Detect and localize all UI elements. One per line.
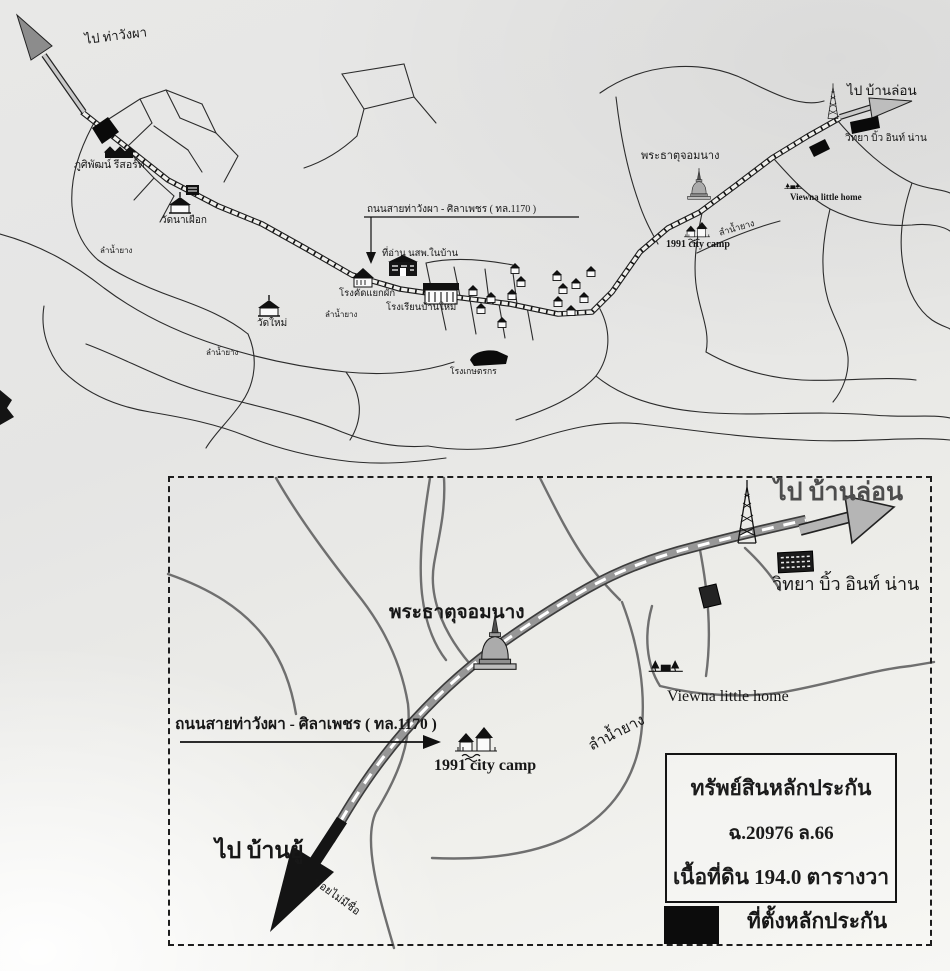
radio-tower-overview-icon (828, 83, 838, 118)
city-camp-overview-label: 1991 city camp (666, 239, 730, 250)
resort-icon (105, 147, 135, 158)
phra-that-detail-label: พระธาตุจอมนาง (389, 603, 525, 624)
wittaya-overview-label: วิทยา บิ้ว อินท์ น่าน (845, 133, 927, 144)
overview-minor-roads (0, 64, 950, 463)
phra-that-overview-label: พระธาตุจอมนาง (641, 150, 719, 162)
viewna-overview-icon (784, 184, 801, 189)
collateral-title: ทรัพย์สินหลักประกัน (667, 772, 895, 805)
farmer-building-icon (470, 350, 508, 366)
phra-that-chom-nang-overview-icon (688, 168, 711, 199)
collateral-deed-no: ฉ.20976 ล.66 (667, 818, 895, 848)
small-shop-icon (186, 185, 199, 195)
detail-road-label: ถนนสายท่าวังผา - ศิลาเพชร ( ทล.1170 ) (175, 716, 437, 733)
overview-map-drawing (0, 15, 950, 463)
arrow-to-tha-wang-pha (17, 15, 84, 112)
stream-label-2: ลำน้ำยาง (206, 349, 238, 358)
viewna-overview-label: Viewna little home (790, 193, 862, 203)
resort-label: ภูศิพัฒน์ รีสอร์ท (74, 160, 145, 172)
arrow-to-ban-lon-overview (840, 98, 912, 118)
wat-na-phueak-label: วัดนาเผือก (161, 215, 207, 226)
wat-mai-label: วัดใหม่ (257, 318, 287, 329)
collateral-land-area: เนื้อที่ดิน 194.0 ตารางวา (667, 861, 895, 894)
overview-road-label: ถนนสายท่าวังผา - ศิลาเพชร ( ทล.1170 ) (367, 204, 536, 215)
collateral-marker-overview-icon (809, 139, 830, 157)
wittaya-building-overview-icon (850, 116, 880, 134)
viewna-detail-label: Viewna little home (667, 688, 789, 706)
vegetable-plant-icon (352, 268, 374, 287)
village-houses-icons (468, 263, 596, 328)
city-camp-detail-label: 1991 city camp (434, 757, 536, 775)
reading-hut-label: ที่อ่าน นสพ.ในบ้าน (382, 249, 458, 259)
dest-ban-yu-label: ไป บ้านยู้ (215, 838, 304, 863)
dest-ban-lon-overview-label: ไป บ้านล่อน (847, 84, 917, 99)
edge-artifact (0, 390, 14, 425)
school-label: โรงเรียนบ้านใหม่ (386, 303, 456, 313)
farmer-building-label: โรงเกษตรกร (450, 367, 497, 376)
wittaya-detail-label: วิทยา บิ้ว อินท์ น่าน (772, 575, 919, 595)
legend-collateral-label: ที่ตั้งหลักประกัน (747, 910, 887, 933)
wat-mai-icon (258, 295, 280, 316)
vegetable-plant-label: โรงคัดแยกผัก (339, 289, 395, 299)
stream-label-3: ลำน้ำยาง (325, 311, 357, 320)
stream-label-1: ลำน้ำยาง (100, 247, 132, 256)
legend-collateral-swatch (664, 906, 719, 944)
collateral-info-box: ทรัพย์สินหลักประกัน ฉ.20976 ล.66 เนื้อที… (665, 753, 897, 903)
dest-ban-lon-detail-label: ไป บ้านล่อน (774, 479, 903, 507)
school-icon (423, 283, 459, 304)
scanned-map-document: ไป ท่าวังผา ภูศิพัฒน์ รีสอร์ท วัดนาเผือก… (0, 0, 950, 971)
